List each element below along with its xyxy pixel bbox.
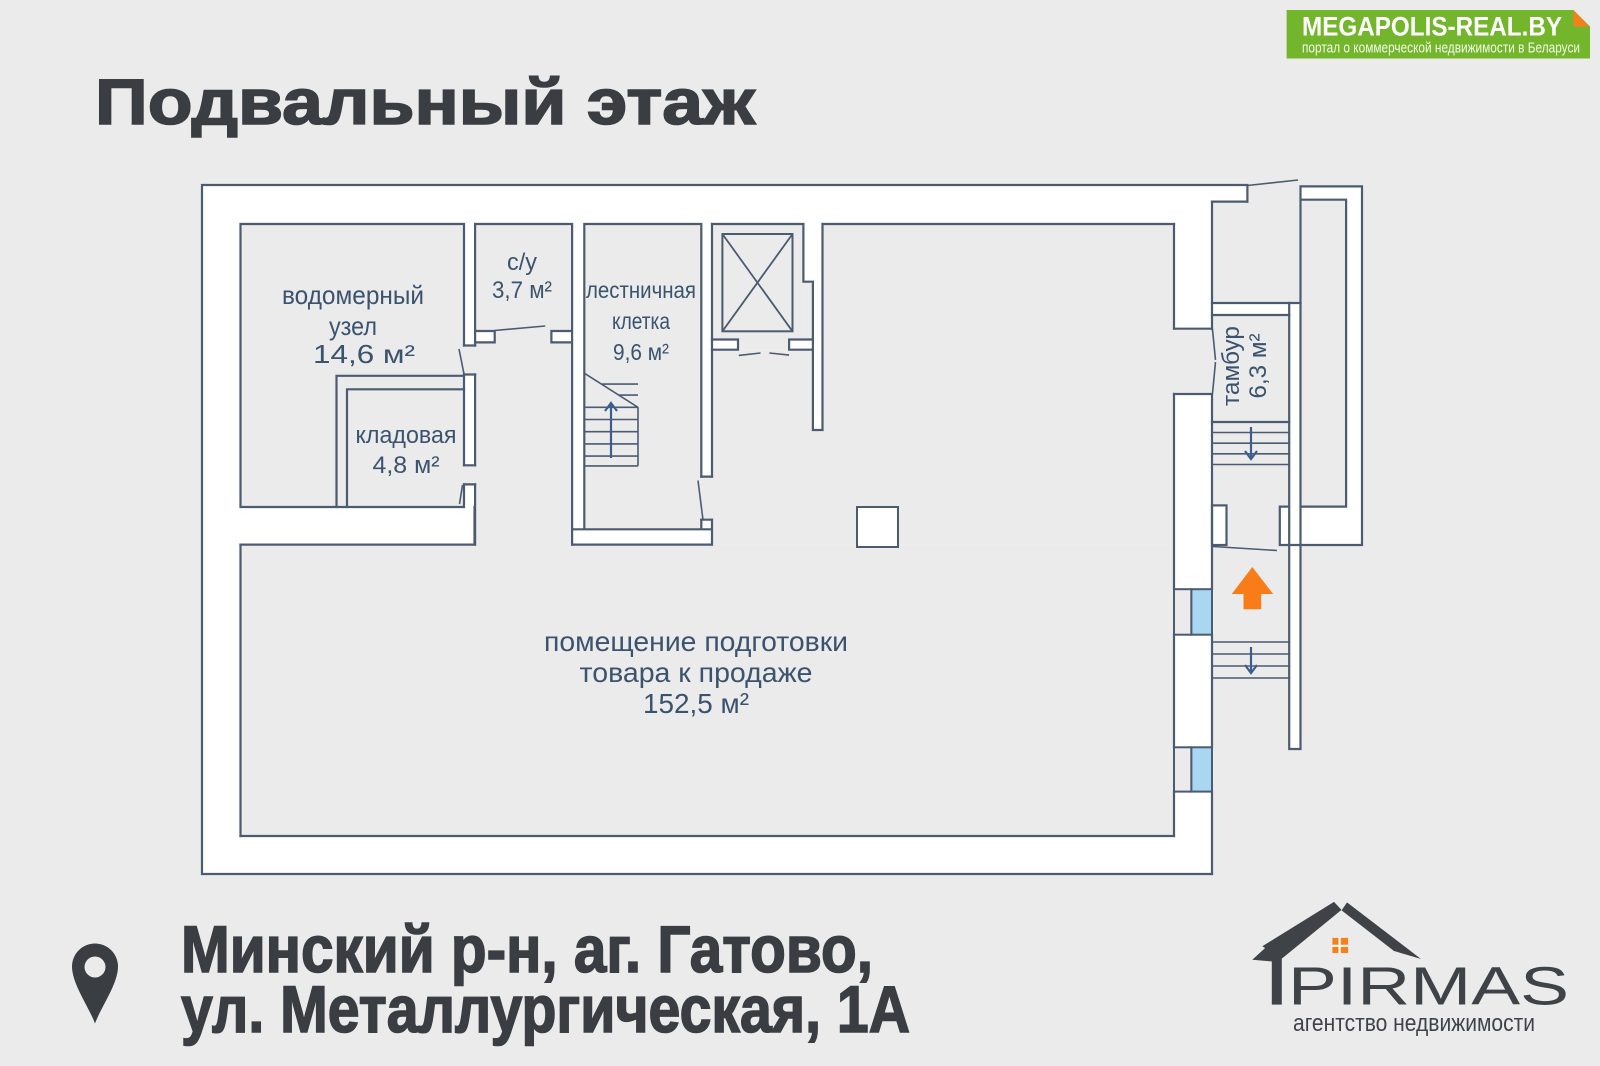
svg-text:4,8 м²: 4,8 м² bbox=[373, 452, 440, 479]
svg-text:ул. Металлургическая, 1А: ул. Металлургическая, 1А bbox=[181, 972, 910, 1046]
svg-text:клетка: клетка bbox=[612, 308, 670, 334]
svg-text:с/у: с/у bbox=[507, 249, 537, 276]
svg-text:6,3 м²: 6,3 м² bbox=[1245, 334, 1272, 399]
svg-text:товара к продаже: товара к продаже bbox=[580, 657, 813, 688]
svg-text:152,5 м²: 152,5 м² bbox=[643, 688, 749, 719]
svg-text:кладовая: кладовая bbox=[356, 422, 457, 449]
svg-text:3,7 м²: 3,7 м² bbox=[492, 277, 552, 304]
svg-text:9,6 м²: 9,6 м² bbox=[613, 339, 669, 365]
svg-text:узел: узел bbox=[329, 311, 377, 341]
svg-text:водомерный: водомерный bbox=[282, 280, 424, 310]
svg-text:14,6 м²: 14,6 м² bbox=[313, 339, 415, 369]
svg-text:PIRMAS: PIRMAS bbox=[1288, 957, 1569, 1017]
svg-text:агентство недвижимости: агентство недвижимости bbox=[1293, 1010, 1535, 1037]
svg-text:тамбур: тамбур bbox=[1218, 326, 1245, 406]
svg-text:портал о коммерческой недвижим: портал о коммерческой недвижимости в Бел… bbox=[1302, 40, 1580, 57]
svg-text:MEGAPOLIS-REAL.BY: MEGAPOLIS-REAL.BY bbox=[1302, 12, 1562, 42]
svg-text:помещение подготовки: помещение подготовки bbox=[544, 626, 848, 657]
svg-text:лестничная: лестничная bbox=[586, 277, 696, 303]
svg-text:Подвальный этаж: Подвальный этаж bbox=[95, 66, 756, 138]
